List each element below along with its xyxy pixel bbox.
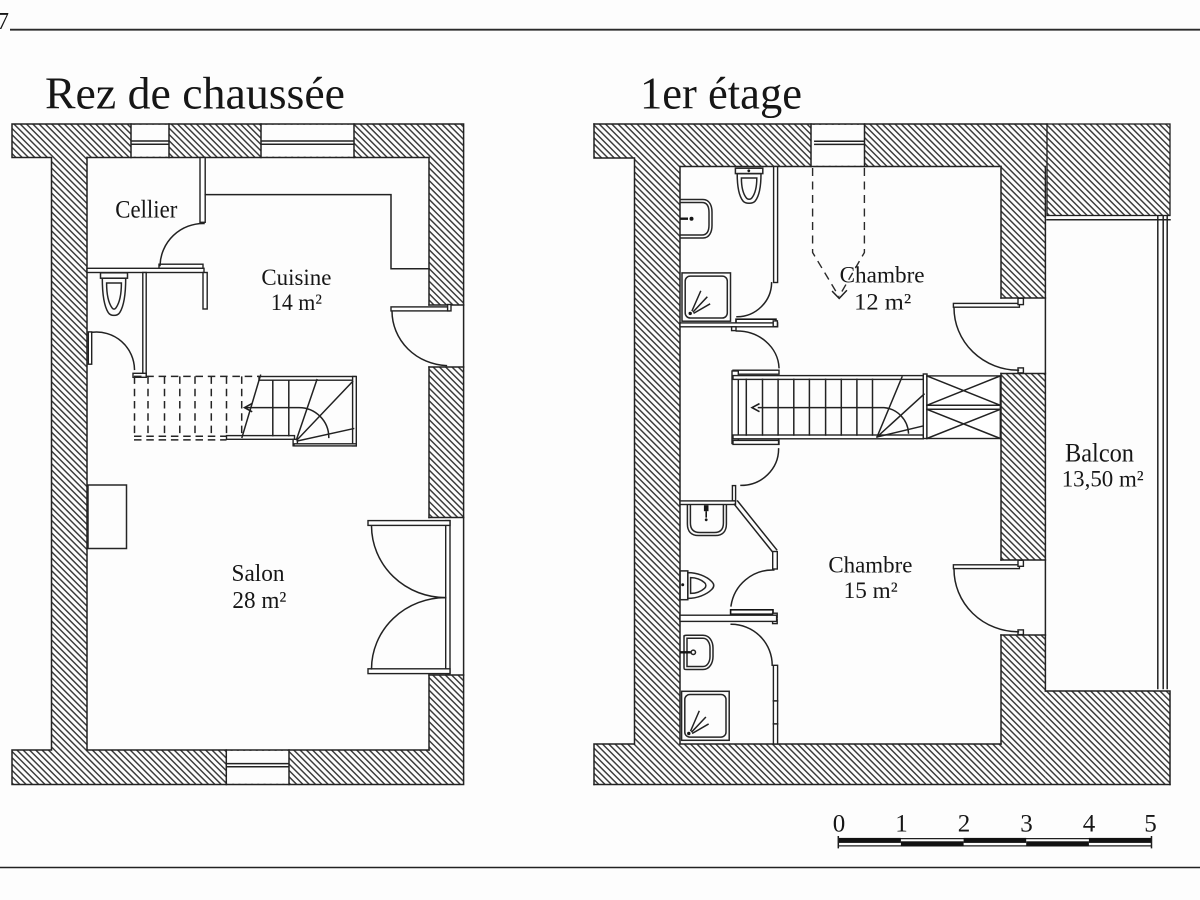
svg-text:Salon: Salon bbox=[232, 561, 285, 587]
svg-text:14 m²: 14 m² bbox=[271, 290, 322, 315]
svg-text:15 m²: 15 m² bbox=[844, 578, 898, 603]
svg-text:1: 1 bbox=[895, 811, 908, 838]
svg-text:0: 0 bbox=[833, 811, 846, 838]
svg-text:Cellier: Cellier bbox=[115, 197, 178, 224]
svg-text:4: 4 bbox=[1083, 811, 1096, 838]
svg-text:1er étage: 1er étage bbox=[640, 68, 802, 119]
svg-text:28 m²: 28 m² bbox=[232, 588, 286, 614]
svg-text:13,50 m²: 13,50 m² bbox=[1062, 467, 1144, 492]
svg-text:12 m²: 12 m² bbox=[854, 289, 911, 314]
svg-text:Rez de chaussée: Rez de chaussée bbox=[45, 68, 345, 119]
svg-text:5: 5 bbox=[1144, 811, 1157, 838]
svg-text:2: 2 bbox=[958, 811, 971, 838]
svg-text:Chambre: Chambre bbox=[840, 263, 925, 288]
svg-text:7: 7 bbox=[0, 9, 9, 35]
svg-text:3: 3 bbox=[1020, 811, 1033, 838]
svg-text:Balcon: Balcon bbox=[1065, 439, 1134, 468]
svg-text:Chambre: Chambre bbox=[828, 553, 912, 578]
svg-text:Cuisine: Cuisine bbox=[261, 265, 331, 290]
